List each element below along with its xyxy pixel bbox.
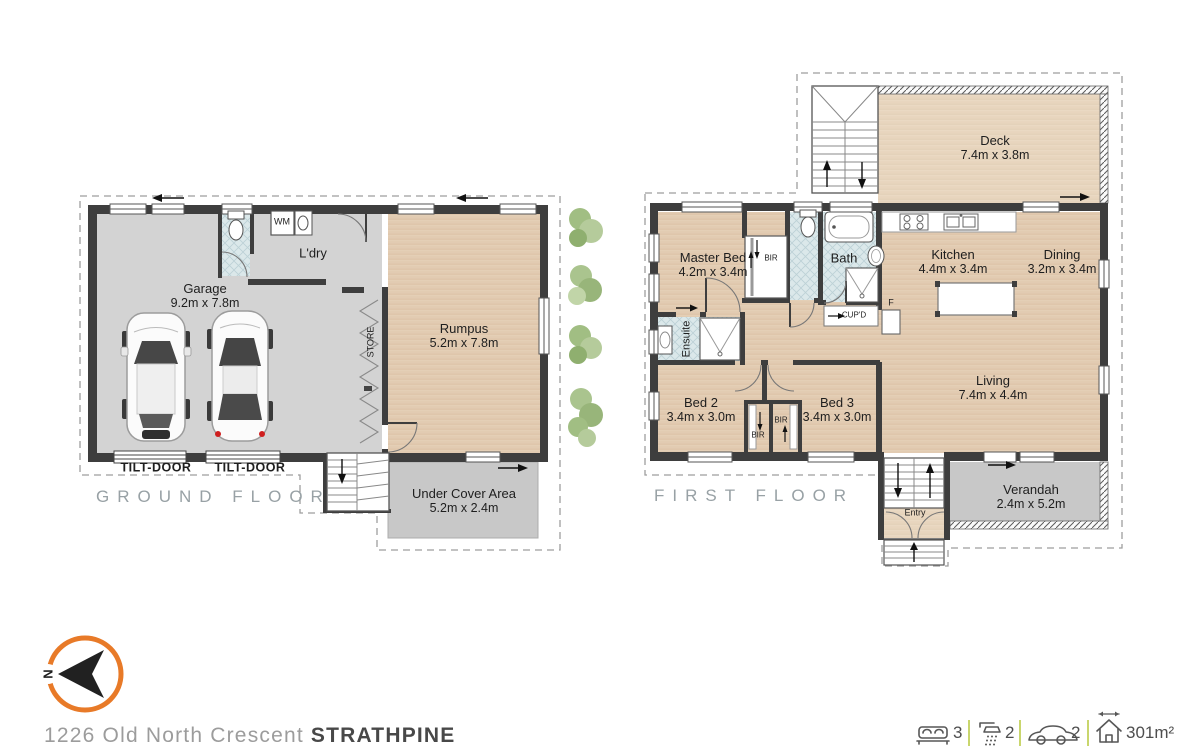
laundry-sink-icon (295, 211, 312, 235)
laundry-label: L'dry (299, 245, 327, 260)
ensuite-shower-icon (700, 318, 740, 360)
shower-icon (980, 723, 1000, 746)
bed-icon (917, 727, 949, 744)
tree-icon (569, 208, 603, 247)
car-icon (1029, 726, 1077, 744)
toilet-icon (228, 211, 244, 240)
ensuite-basin-icon (658, 326, 672, 354)
island-bench (935, 281, 1017, 317)
tree-icon (569, 325, 602, 364)
stat-bathrooms-count: 2 (1005, 723, 1014, 743)
fridge-label: F (888, 298, 894, 309)
stat-land-area: 301m² (1126, 723, 1174, 743)
room-dims: 3.4m x 3.0m (803, 410, 872, 425)
under-cover-label: Under Cover Area 5.2m x 2.4m (412, 486, 516, 516)
external-steps (884, 540, 944, 565)
first-floor-tag: FIRST FLOOR (654, 486, 854, 506)
room-name: Under Cover Area (412, 486, 516, 501)
room-dims: 5.2m x 7.8m (430, 336, 499, 351)
stat-divider (1087, 720, 1089, 746)
entry-label: Entry (904, 508, 925, 519)
verandah-label: Verandah 2.4m x 5.2m (997, 482, 1066, 512)
room-name: Deck (961, 133, 1030, 148)
kitchen-sink-icon (944, 214, 978, 230)
room-name: Bed 3 (803, 395, 872, 410)
floorplan-page: Garage 9.2m x 7.8m L'dry WM STORE Rumpus… (0, 0, 1200, 750)
address-suburb: STRATHPINE (311, 724, 456, 747)
ensuite-label: Ensuite (681, 321, 694, 358)
tree-icon (568, 388, 603, 447)
ground-floor-tag: GROUND FLOOR (96, 487, 331, 507)
room-name: Kitchen (919, 247, 988, 262)
fridge-icon (882, 310, 900, 334)
deck-label: Deck 7.4m x 3.8m (961, 133, 1030, 163)
deck-stairs (812, 86, 878, 193)
bed3-label: Bed 3 3.4m x 3.0m (803, 395, 872, 425)
bir-bed3-label: BIR (774, 415, 787, 424)
bed2-label: Bed 2 3.4m x 3.0m (667, 395, 736, 425)
bath-label: Bath (831, 250, 858, 265)
store-label: STORE (366, 327, 377, 358)
stat-bedrooms-count: 3 (953, 723, 962, 743)
room-dims: 2.4m x 5.2m (997, 497, 1066, 512)
car-top-view-wagon (121, 313, 191, 441)
room-dims: 4.2m x 3.4m (679, 265, 748, 280)
room-dims: 4.4m x 3.4m (919, 262, 988, 277)
room-dims: 9.2m x 7.8m (171, 296, 240, 311)
room-dims: 7.4m x 4.4m (959, 388, 1028, 403)
garage-label: Garage 9.2m x 7.8m (171, 281, 240, 311)
cooktop-icon (900, 214, 928, 230)
toilet-icon (800, 210, 816, 237)
bathtub-icon (825, 212, 873, 242)
ground-stairs (327, 453, 389, 511)
rumpus-label: Rumpus 5.2m x 7.8m (430, 321, 499, 351)
living-label: Living 7.4m x 4.4m (959, 373, 1028, 403)
tilt-door-label-left: TILT-DOOR (121, 461, 192, 476)
stat-cars-count: 2 (1071, 723, 1080, 743)
room-name: Living (959, 373, 1028, 388)
room-name: Master Bed (679, 250, 748, 265)
address-street: 1226 Old North Crescent (44, 724, 304, 747)
room-dims: 7.4m x 3.8m (961, 148, 1030, 163)
area-icon (1097, 712, 1121, 743)
room-name: Dining (1028, 247, 1097, 262)
compass-north-label: N (40, 669, 55, 678)
bir-master-label: BIR (764, 253, 777, 262)
car-top-view-sports (207, 311, 273, 441)
washing-machine-label: WM (274, 217, 290, 228)
room-name: Garage (171, 281, 240, 296)
stat-divider (1019, 720, 1021, 746)
cupd-label: CUP'D (842, 310, 866, 319)
room-dims: 3.2m x 3.4m (1028, 262, 1097, 277)
tree-icon (568, 265, 602, 305)
room-dims: 3.4m x 3.0m (667, 410, 736, 425)
master-bed-label: Master Bed 4.2m x 3.4m (679, 250, 748, 280)
property-address: 1226 Old North CrescentSTRATHPINE (44, 724, 456, 748)
dining-label: Dining 3.2m x 3.4m (1028, 247, 1097, 277)
tilt-door-label-right: TILT-DOOR (215, 461, 286, 476)
bath-basin-icon (868, 246, 884, 266)
room-name: Rumpus (430, 321, 499, 336)
bir-bed2-label: BIR (751, 430, 764, 439)
master-bir-closet (745, 236, 787, 298)
room-dims: 5.2m x 2.4m (412, 501, 516, 516)
footer-stat-icons (917, 712, 1121, 747)
stat-divider (968, 720, 970, 746)
room-name: Verandah (997, 482, 1066, 497)
room-name: Bed 2 (667, 395, 736, 410)
shower-icon (846, 268, 878, 302)
kitchen-label: Kitchen 4.4m x 3.4m (919, 247, 988, 277)
kitchen-bench (882, 212, 1016, 232)
